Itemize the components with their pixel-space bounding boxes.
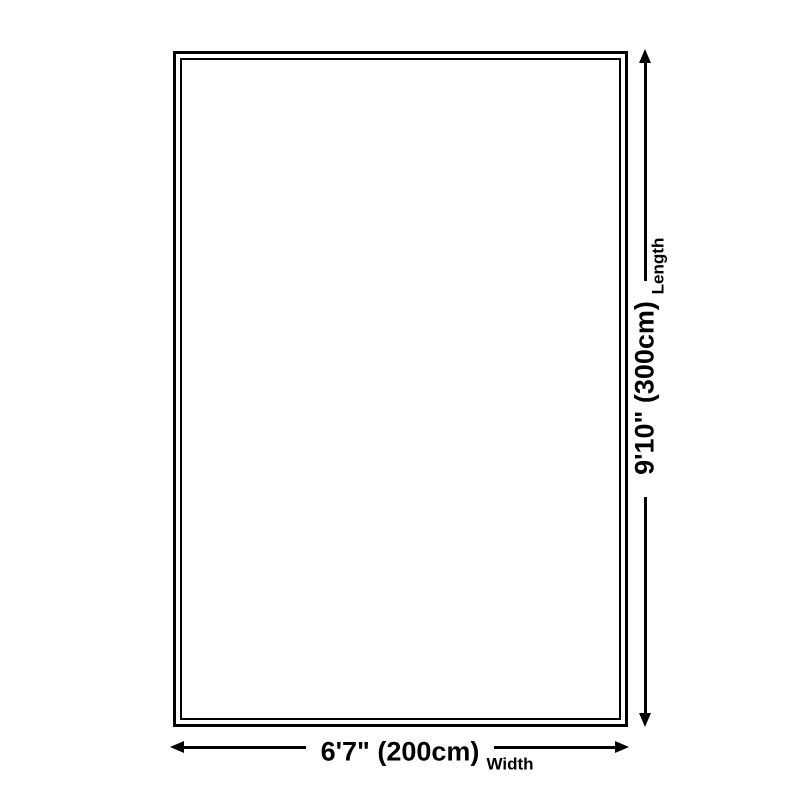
width-dimension-line-right [494, 746, 615, 749]
length-dimension-line-bottom [644, 497, 647, 713]
arrow-right-icon [615, 741, 629, 753]
dimension-diagram: Length 9'10" (300cm) 6'7" (200cm) Width [0, 0, 800, 800]
length-value: 9'10" (300cm) [632, 301, 659, 475]
product-outline [173, 51, 628, 727]
length-label: Length [650, 238, 667, 295]
width-value: 6'7" (200cm) [321, 739, 480, 766]
length-dimension-line-top [644, 62, 647, 281]
arrow-up-icon [639, 49, 651, 63]
width-dimension-line-left [184, 746, 306, 749]
width-label: Width [486, 756, 533, 773]
arrow-down-icon [639, 713, 651, 727]
product-outline-inner-border [180, 58, 621, 720]
arrow-left-icon [170, 741, 184, 753]
